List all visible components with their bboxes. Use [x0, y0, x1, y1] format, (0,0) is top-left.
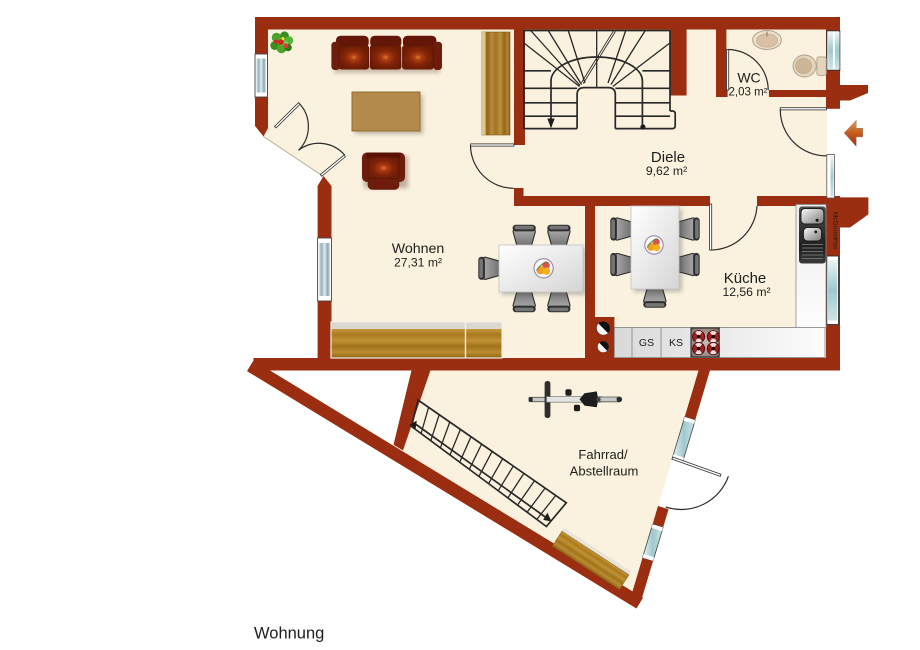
svg-text:WC: WC — [737, 70, 760, 86]
svg-text:27,31 m²: 27,31 m² — [394, 256, 442, 270]
svg-text:12,56 m²: 12,56 m² — [722, 285, 770, 299]
svg-text:9,62 m²: 9,62 m² — [646, 164, 687, 178]
svg-text:McGrundriss: McGrundriss — [832, 212, 839, 250]
svg-text:Fahrrad/: Fahrrad/ — [578, 447, 628, 462]
svg-text:KS: KS — [669, 337, 683, 349]
svg-text:GS: GS — [639, 337, 654, 349]
svg-text:Wohnung: Wohnung — [254, 625, 324, 643]
svg-text:2,03 m²: 2,03 m² — [729, 87, 768, 99]
svg-text:Abstellraum: Abstellraum — [570, 464, 639, 479]
